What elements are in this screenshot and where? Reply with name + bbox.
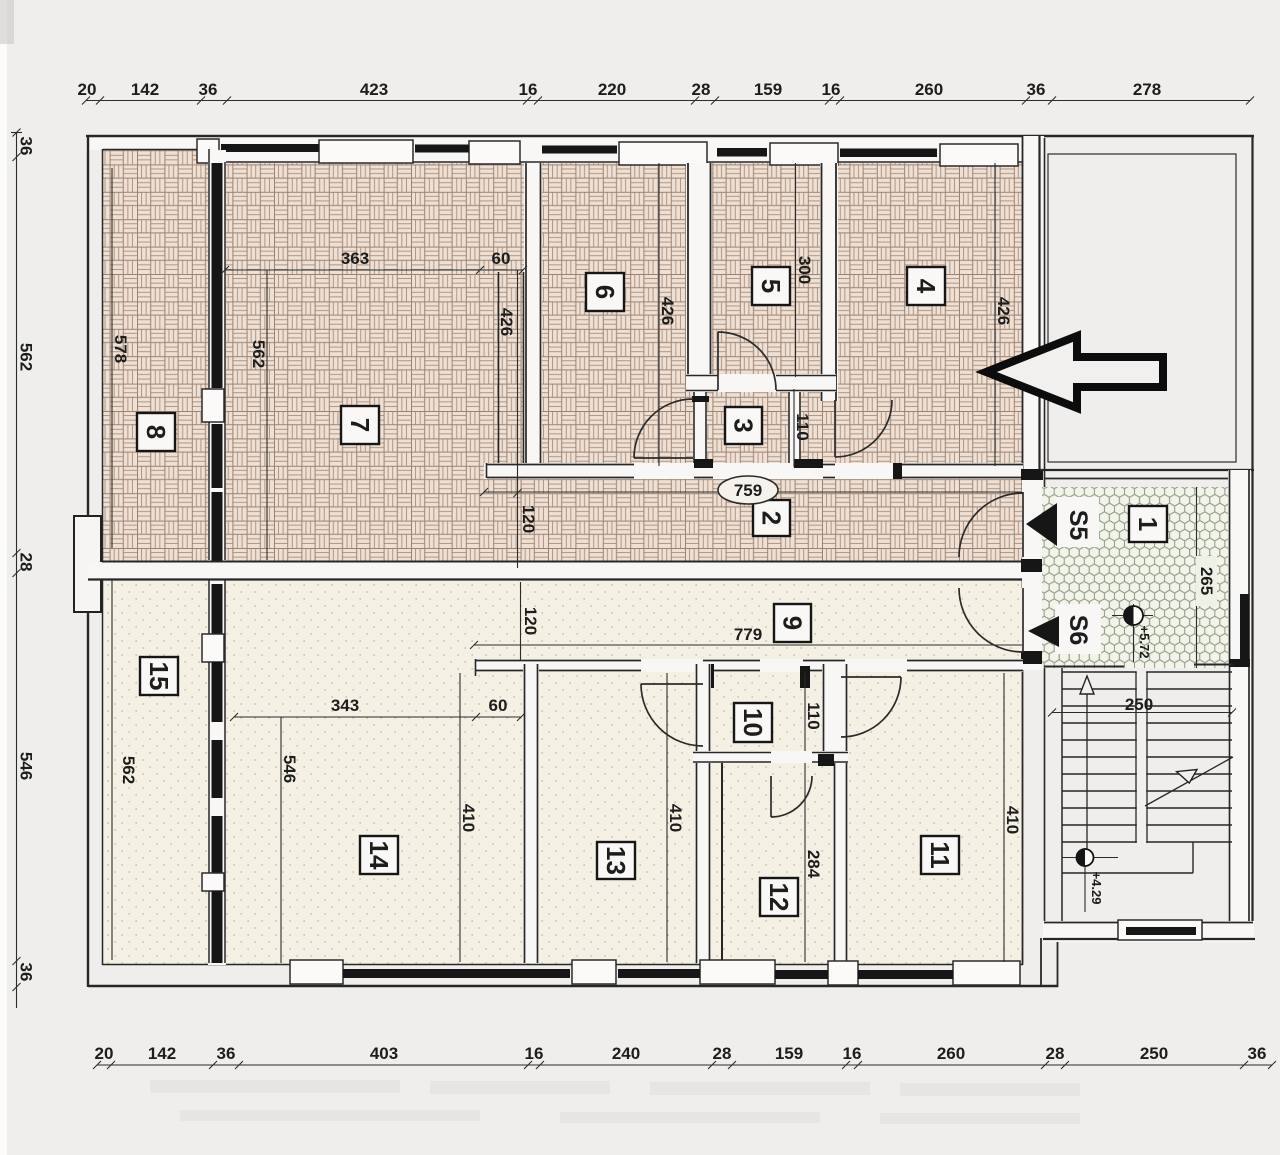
svg-text:142: 142 bbox=[148, 1044, 176, 1063]
svg-text:562: 562 bbox=[119, 756, 138, 784]
svg-text:5: 5 bbox=[756, 279, 786, 293]
svg-text:284: 284 bbox=[804, 850, 823, 879]
svg-text:28: 28 bbox=[713, 1044, 732, 1063]
svg-text:250: 250 bbox=[1125, 695, 1153, 714]
svg-text:3: 3 bbox=[729, 418, 759, 432]
svg-text:546: 546 bbox=[17, 752, 36, 780]
svg-text:16: 16 bbox=[822, 80, 841, 99]
svg-text:36: 36 bbox=[1248, 1044, 1267, 1063]
svg-text:28: 28 bbox=[692, 80, 711, 99]
svg-text:142: 142 bbox=[131, 80, 159, 99]
svg-text:36: 36 bbox=[217, 1044, 236, 1063]
svg-text:426: 426 bbox=[994, 297, 1013, 325]
svg-text:159: 159 bbox=[754, 80, 782, 99]
svg-text:423: 423 bbox=[360, 80, 388, 99]
svg-text:60: 60 bbox=[492, 249, 511, 268]
svg-text:+5.72: +5.72 bbox=[1137, 626, 1152, 659]
svg-text:7: 7 bbox=[345, 418, 375, 432]
svg-text:403: 403 bbox=[370, 1044, 398, 1063]
svg-text:6: 6 bbox=[590, 285, 620, 299]
svg-text:36: 36 bbox=[17, 963, 36, 982]
svg-text:260: 260 bbox=[937, 1044, 965, 1063]
svg-text:159: 159 bbox=[775, 1044, 803, 1063]
svg-text:4: 4 bbox=[911, 279, 941, 294]
svg-text:410: 410 bbox=[459, 804, 478, 832]
svg-text:11: 11 bbox=[925, 841, 955, 869]
svg-text:28: 28 bbox=[17, 553, 36, 572]
svg-text:220: 220 bbox=[598, 80, 626, 99]
svg-text:16: 16 bbox=[843, 1044, 862, 1063]
svg-text:260: 260 bbox=[915, 80, 943, 99]
svg-text:110: 110 bbox=[804, 702, 823, 729]
svg-text:120: 120 bbox=[521, 607, 540, 635]
svg-text:1: 1 bbox=[1133, 517, 1163, 531]
svg-text:278: 278 bbox=[1133, 80, 1161, 99]
svg-text:578: 578 bbox=[111, 335, 130, 363]
svg-text:+4.29: +4.29 bbox=[1089, 872, 1104, 905]
svg-text:28: 28 bbox=[1046, 1044, 1065, 1063]
svg-text:16: 16 bbox=[519, 80, 538, 99]
svg-text:546: 546 bbox=[280, 755, 299, 783]
svg-text:240: 240 bbox=[612, 1044, 640, 1063]
svg-text:10: 10 bbox=[738, 708, 768, 737]
svg-text:300: 300 bbox=[795, 256, 814, 284]
svg-text:8: 8 bbox=[141, 425, 171, 439]
svg-text:20: 20 bbox=[78, 80, 97, 99]
svg-text:60: 60 bbox=[489, 696, 508, 715]
svg-text:562: 562 bbox=[17, 343, 36, 371]
svg-text:410: 410 bbox=[1003, 806, 1022, 834]
svg-text:36: 36 bbox=[199, 80, 218, 99]
svg-text:410: 410 bbox=[666, 804, 685, 832]
svg-text:S5: S5 bbox=[1064, 510, 1092, 541]
svg-text:15: 15 bbox=[144, 662, 174, 691]
svg-text:20: 20 bbox=[95, 1044, 114, 1063]
svg-text:13: 13 bbox=[601, 846, 631, 875]
svg-text:S6: S6 bbox=[1064, 615, 1092, 646]
svg-text:426: 426 bbox=[658, 297, 677, 325]
svg-text:426: 426 bbox=[497, 308, 516, 336]
svg-text:110: 110 bbox=[793, 413, 812, 440]
svg-text:36: 36 bbox=[17, 137, 36, 156]
svg-text:9: 9 bbox=[778, 616, 808, 630]
svg-text:16: 16 bbox=[525, 1044, 544, 1063]
svg-text:2: 2 bbox=[757, 511, 787, 525]
svg-text:363: 363 bbox=[341, 249, 369, 268]
svg-text:343: 343 bbox=[331, 696, 359, 715]
svg-text:36: 36 bbox=[1027, 80, 1046, 99]
svg-text:120: 120 bbox=[519, 505, 538, 533]
svg-text:265: 265 bbox=[1197, 567, 1216, 595]
svg-text:759: 759 bbox=[734, 481, 762, 500]
svg-text:12: 12 bbox=[764, 883, 794, 912]
svg-text:562: 562 bbox=[249, 340, 268, 368]
svg-text:14: 14 bbox=[364, 841, 394, 870]
svg-text:779: 779 bbox=[734, 625, 762, 644]
svg-text:250: 250 bbox=[1140, 1044, 1168, 1063]
